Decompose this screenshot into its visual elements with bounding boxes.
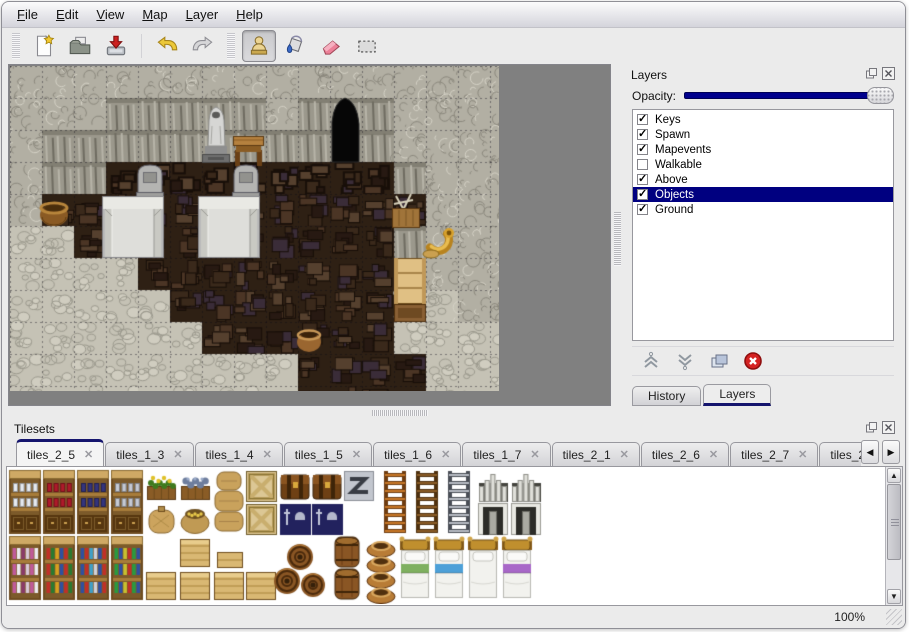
new-file-button[interactable] [27,30,61,62]
horizontal-splitter[interactable] [2,406,905,418]
opacity-slider[interactable] [684,87,894,104]
menu-edit[interactable]: Edit [47,4,87,25]
tileset-tab-tiles_2_8[interactable]: tiles_2_8✕ [819,442,861,466]
close-tab-icon[interactable]: ✕ [84,448,93,461]
redo-button[interactable] [186,30,220,62]
redo-icon [190,33,216,59]
layers-panel-title: Layers [631,68,667,82]
opacity-label: Opacity: [632,89,676,103]
layers-panel-header: Layers [624,64,902,86]
close-tab-icon[interactable]: ✕ [441,448,450,461]
layer-row-mapevents[interactable]: ✓Mapevents [633,142,893,157]
open-button[interactable] [63,30,97,62]
menu-view[interactable]: View [87,4,133,25]
tileset-canvas[interactable] [7,467,885,604]
tileset-vertical-scrollbar[interactable]: ▲ ▼ [885,467,902,605]
tileset-tab-tiles_1_3[interactable]: tiles_1_3✕ [105,442,193,466]
tileset-tab-label: tiles_2_6 [652,448,700,462]
select-icon [354,33,380,59]
layer-visibility-checkbox[interactable]: ✓ [637,174,648,185]
dock-tab-history[interactable]: History [632,386,701,406]
scroll-up-icon[interactable]: ▲ [887,468,901,483]
vertical-splitter[interactable] [611,64,624,406]
close-tab-icon[interactable]: ✕ [798,448,807,461]
scrollbar-thumb[interactable] [887,484,901,560]
stamp-button[interactable] [242,30,276,62]
dock-tab-layers[interactable]: Layers [703,384,771,406]
layer-row-keys[interactable]: ✓Keys [633,112,893,127]
tilesets-panel-header: Tilesets [6,418,903,439]
fill-button[interactable] [278,30,312,62]
opacity-row: Opacity: [624,86,902,107]
layer-visibility-checkbox[interactable]: ✓ [637,144,648,155]
close-tab-icon[interactable]: ✕ [620,448,629,461]
toolbar-grip[interactable] [227,33,235,59]
layer-name: Ground [655,204,693,216]
toolbar [2,28,905,64]
stamp-icon [246,33,272,59]
save-button[interactable] [99,30,133,62]
tileset-tab-label: tiles_2_5 [27,448,75,462]
layer-visibility-checkbox[interactable]: ✓ [637,129,648,140]
app-window: FileEditViewMapLayerHelp Layers Opacity:… [1,1,906,629]
splitter-grip[interactable] [372,410,428,416]
close-panel-icon[interactable] [882,67,895,83]
tileset-tab-tiles_2_1[interactable]: tiles_2_1✕ [552,442,640,466]
menu-layer[interactable]: Layer [177,4,228,25]
tileset-content[interactable]: ▲ ▼ [6,467,903,606]
tileset-tab-label: tiles_1_4 [206,448,254,462]
splitter-grip[interactable] [614,212,621,266]
tileset-tab-label: tiles_2_8 [830,448,861,462]
tileset-tab-tiles_1_5[interactable]: tiles_1_5✕ [284,442,372,466]
select-button[interactable] [350,30,384,62]
tilesets-panel-title: Tilesets [14,422,55,436]
close-tab-icon[interactable]: ✕ [709,448,718,461]
save-icon [103,33,129,59]
tileset-tabbar: tiles_2_5✕tiles_1_3✕tiles_1_4✕tiles_1_5✕… [6,439,903,467]
layers-list: ✓Keys✓Spawn✓MapeventsWalkable✓Above✓Obje… [632,109,894,341]
tileset-tab-tiles_2_5[interactable]: tiles_2_5✕ [16,439,104,466]
undo-button[interactable] [150,30,184,62]
dock-tabs: HistoryLayers [632,384,773,406]
layers-dock: Layers Opacity: ✓Keys✓Spawn✓MapeventsWal… [624,64,902,406]
opacity-slider-handle[interactable] [867,87,894,104]
layer-row-objects[interactable]: ✓Objects [633,187,893,202]
tilesets-panel: Tilesets tiles_2_5✕tiles_1_3✕tiles_1_4✕t… [6,418,903,608]
new-file-icon [31,33,57,59]
float-panel-icon[interactable] [865,67,878,83]
layer-row-walkable[interactable]: Walkable [633,157,893,172]
layer-name: Walkable [655,159,702,171]
layer-name: Spawn [655,129,690,141]
scroll-tabs-right-button[interactable]: ▶ [882,440,900,464]
delete-layer-button[interactable] [742,351,764,371]
layer-name: Objects [655,189,694,201]
tileset-tab-tiles_2_6[interactable]: tiles_2_6✕ [641,442,729,466]
tileset-tab-tiles_1_4[interactable]: tiles_1_4✕ [195,442,283,466]
layer-row-spawn[interactable]: ✓Spawn [633,127,893,142]
eraser-button[interactable] [314,30,348,62]
move-layer-down-button[interactable] [674,351,696,371]
tileset-tab-label: tiles_1_6 [384,448,432,462]
close-panel-icon[interactable] [882,421,895,437]
scrollbar-track[interactable] [886,560,902,588]
scroll-down-icon[interactable]: ▼ [887,589,901,604]
duplicate-layer-button[interactable] [708,351,730,371]
tileset-tab-label: tiles_1_3 [116,448,164,462]
menu-help[interactable]: Help [227,4,272,25]
tileset-tab-tiles_1_7[interactable]: tiles_1_7✕ [462,442,550,466]
tileset-tab-tiles_1_6[interactable]: tiles_1_6✕ [373,442,461,466]
status-bar: 100% [2,606,905,628]
toolbar-separator [141,34,142,58]
close-tab-icon[interactable]: ✕ [530,448,539,461]
toolbar-grip[interactable] [12,33,20,59]
layer-name: Mapevents [655,144,711,156]
close-tab-icon[interactable]: ✕ [352,448,361,461]
tileset-tab-label: tiles_2_7 [741,448,789,462]
resize-grip-icon[interactable] [886,609,902,625]
layer-name: Keys [655,114,681,126]
scroll-tabs-left-button[interactable]: ◀ [861,440,879,464]
layer-visibility-checkbox[interactable] [637,159,648,170]
menu-bar: FileEditViewMapLayerHelp [2,2,905,28]
opacity-slider-track[interactable] [684,92,892,99]
zoom-level: 100% [834,610,865,624]
tileset-tab-label: tiles_2_1 [563,448,611,462]
float-panel-icon[interactable] [865,421,878,437]
layer-visibility-checkbox[interactable]: ✓ [637,204,648,215]
map-viewport[interactable] [8,64,611,406]
layer-name: Above [655,174,688,186]
menu-file[interactable]: File [8,4,47,25]
layer-visibility-checkbox[interactable]: ✓ [637,189,648,200]
layer-buttons-row [632,346,894,376]
fill-icon [282,33,308,59]
layer-visibility-checkbox[interactable]: ✓ [637,114,648,125]
tileset-tab-label: tiles_1_5 [295,448,343,462]
move-layer-up-button[interactable] [640,351,662,371]
map-canvas[interactable] [10,66,499,391]
close-tab-icon[interactable]: ✕ [263,448,272,461]
layer-row-ground[interactable]: ✓Ground [633,202,893,217]
open-icon [67,33,93,59]
close-tab-icon[interactable]: ✕ [173,448,182,461]
tileset-tab-tiles_2_7[interactable]: tiles_2_7✕ [730,442,818,466]
eraser-icon [318,33,344,59]
tileset-tab-label: tiles_1_7 [473,448,521,462]
layer-row-above[interactable]: ✓Above [633,172,893,187]
menu-map[interactable]: Map [133,4,176,25]
undo-icon [154,33,180,59]
